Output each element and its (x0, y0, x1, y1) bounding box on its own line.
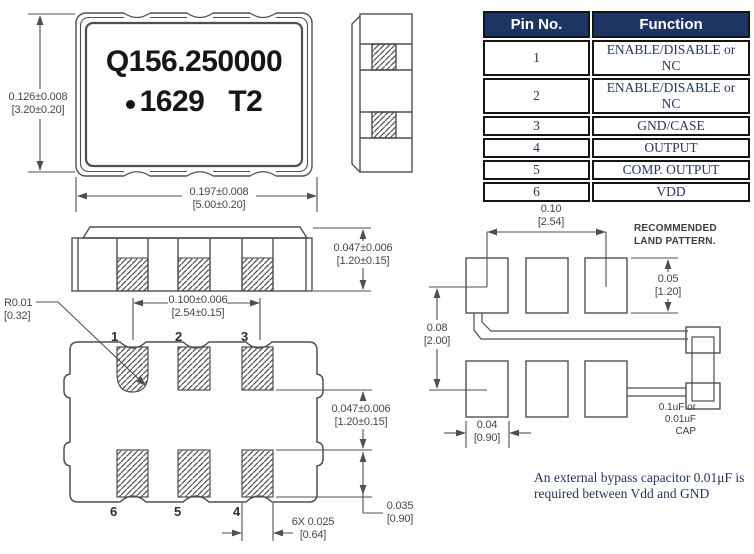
bottom-view-drawing (64, 342, 323, 502)
pad-label-4: 4 (233, 505, 240, 518)
dim-land-pad-height: 0.05[1.20] (644, 273, 692, 298)
header-pin-no: Pin No. (483, 11, 590, 38)
dim-row-gap: 0.047±0.006[1.20±0.15] (325, 403, 397, 428)
marking-dot-icon (126, 100, 135, 109)
dim-pad-width-6x: 6X 0.025[0.64] (288, 516, 338, 541)
dim-top-height: 0.126±0.008[3.20±0.20] (2, 91, 74, 116)
table-row: 3 GND/CASE (483, 116, 750, 136)
pad-label-5: 5 (174, 505, 181, 518)
dim-pad-height: 0.035[0.90] (380, 500, 420, 525)
dim-corner-radius: R0.01[0.32] (4, 297, 50, 322)
function-cell: COMP. OUTPUT (592, 160, 750, 180)
pin-cell: 4 (483, 138, 590, 158)
pin-cell: 5 (483, 160, 590, 180)
pad-label-2: 2 (175, 330, 182, 343)
capacitor-label: 0.1uF or 0.01uF CAP (636, 402, 696, 438)
dim-pad-pitch: 0.100±0.006[2.54±0.15] (148, 294, 248, 319)
table-header-row: Pin No. Function (483, 11, 750, 38)
dim-land-pitch: 0.10[2.54] (527, 203, 575, 228)
oscillator-package-drawing: Q156.250000 1629T2 0.126±0.008[3.20±0.20… (0, 0, 754, 554)
dim-side-height: 0.047±0.006[1.20±0.15] (330, 242, 396, 267)
dim-top-width: 0.197±0.008[5.00±0.20] (183, 186, 255, 211)
side-view-drawing (352, 14, 412, 172)
function-cell: OUTPUT (592, 138, 750, 158)
header-function: Function (592, 11, 750, 38)
function-cell: ENABLE/DISABLE or NC (592, 40, 750, 76)
land-pattern-title: RECOMMENDED LAND PATTERN. (634, 222, 734, 248)
dim-land-row-gap: 0.08[2.00] (413, 322, 461, 347)
table-row: 6 VDD (483, 182, 750, 202)
table-row: 2 ENABLE/DISABLE or NC (483, 78, 750, 114)
bypass-capacitor-note: An external bypass capacitor 0.01μF is r… (534, 470, 754, 502)
function-cell: GND/CASE (592, 116, 750, 136)
dim-land-pad-width: 0.04[0.90] (463, 419, 511, 444)
pad-label-1: 1 (111, 330, 118, 343)
table-row: 4 OUTPUT (483, 138, 750, 158)
pad-label-6: 6 (110, 505, 117, 518)
pin-cell: 2 (483, 78, 590, 114)
pad-label-3: 3 (241, 330, 248, 343)
front-view-drawing (72, 227, 312, 291)
pin-function-table: Pin No. Function 1 ENABLE/DISABLE or NC … (481, 9, 752, 204)
marking-datecode: 1629 (140, 85, 205, 118)
marking-datecode-line: 1629T2 (86, 82, 302, 122)
marking-code: T2 (228, 85, 262, 118)
table-row: 5 COMP. OUTPUT (483, 160, 750, 180)
function-cell: VDD (592, 182, 750, 202)
marking-frequency: Q156.250000 (86, 42, 302, 82)
pin-cell: 6 (483, 182, 590, 202)
table-row: 1 ENABLE/DISABLE or NC (483, 40, 750, 76)
function-cell: ENABLE/DISABLE or NC (592, 78, 750, 114)
pin-cell: 3 (483, 116, 590, 136)
pin-cell: 1 (483, 40, 590, 76)
package-marking: Q156.250000 1629T2 (86, 42, 302, 122)
